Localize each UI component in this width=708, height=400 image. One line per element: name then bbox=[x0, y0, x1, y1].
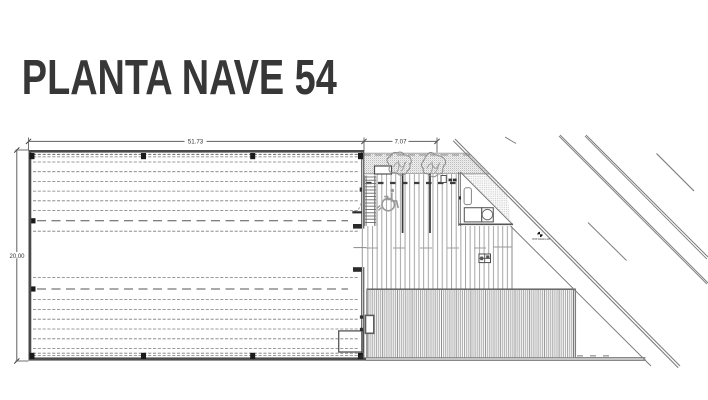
svg-text:7.07: 7.07 bbox=[394, 138, 407, 145]
svg-text:20,00: 20,00 bbox=[9, 254, 25, 260]
svg-text:PLANTA NAVE 54: PLANTA NAVE 54 bbox=[22, 50, 337, 105]
svg-text:51.73: 51.73 bbox=[188, 138, 204, 145]
svg-text:PUNT AIGUA LLUM: PUNT AIGUA LLUM bbox=[532, 237, 550, 241]
